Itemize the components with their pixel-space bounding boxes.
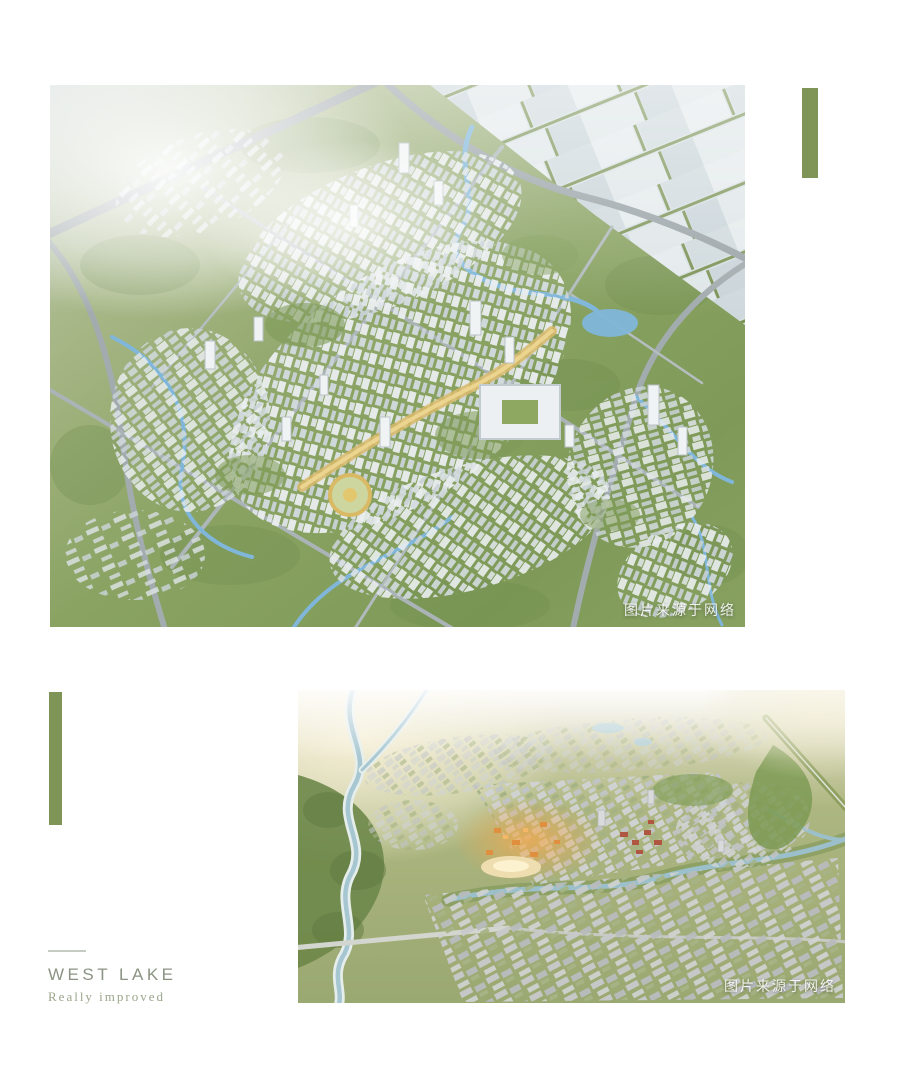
caption-dash xyxy=(48,950,86,952)
hero-watermark: 图片来源于网络 xyxy=(624,600,736,620)
caption-title: WEST LAKE xyxy=(48,965,177,985)
caption-subtitle: Really improved xyxy=(48,989,177,1005)
second-watermark: 图片来源于网络 xyxy=(724,976,836,996)
footer-caption: WEST LAKE Really improved xyxy=(48,950,177,1005)
article-page: 图片来源于网络 xyxy=(0,0,900,1065)
reflecting-pond xyxy=(481,856,541,878)
hero-aerial-art xyxy=(50,85,745,627)
accent-bar-top-right xyxy=(802,88,818,178)
second-aerial-image: 图片来源于网络 xyxy=(298,690,845,1003)
hero-aerial-image: 图片来源于网络 xyxy=(50,85,745,627)
second-aerial-art xyxy=(298,690,845,1003)
courtyard-building xyxy=(480,385,560,439)
central-plaza xyxy=(330,475,370,515)
accent-bar-left xyxy=(49,692,62,825)
cloud-haze-2 xyxy=(200,140,500,310)
